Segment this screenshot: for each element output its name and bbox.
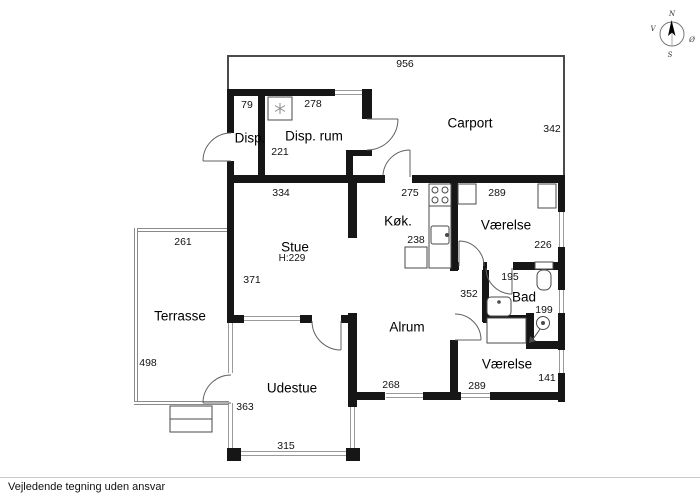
dimension-label: 352 [460,289,478,300]
dimension-label: 199 [535,305,553,316]
washing-machine-icon [268,97,292,120]
dimension-label: 498 [139,358,157,369]
room-label-kokken: Køk. [384,214,412,228]
dimension-label: 79 [241,100,253,111]
dimension-label: 289 [468,381,486,392]
door-swing [383,150,410,177]
shower-icon [529,317,550,344]
dimension-label: 195 [501,272,519,283]
room-label-bad: Bad [512,290,536,304]
floorplan-canvas: N Ø S V Disp. Disp. rum Carport Køk. Vær… [0,0,700,500]
dimension-label: 278 [304,99,322,110]
dimension-label: 221 [271,147,289,158]
ceiling-height-note: H:229 [279,254,306,264]
dimension-label: 289 [488,188,506,199]
room-label-stue: Stue [281,240,309,254]
compass-east-label: Ø [688,36,695,44]
room-label-vaerelse-se: Værelse [482,357,532,371]
dimension-label: 363 [236,402,254,413]
toilet-icon [535,262,553,290]
dimension-label: 371 [243,275,261,286]
compass-west-label: V [650,25,656,33]
door-swing [203,375,231,403]
disclaimer-text: Vejledende tegning uden ansvar [8,481,165,493]
bathroom-sink-icon [487,297,511,316]
dimension-label: 334 [272,188,290,199]
room-label-terrasse: Terrasse [154,309,206,323]
fixtures-layer [0,0,700,500]
room-label-disp-rum: Disp. rum [285,129,343,143]
room-label-alrum: Alrum [389,320,424,334]
compass-rose: N Ø S V [645,5,700,60]
dimension-label: 956 [396,59,414,70]
door-swing [203,133,231,161]
door-swing [367,119,398,150]
footer-divider [0,477,700,478]
cabinet [405,247,427,268]
door-swing [455,314,481,340]
dimension-label: 315 [277,441,295,452]
room-label-udestue: Udestue [267,381,317,395]
door-swing [312,321,341,350]
dimension-label: 268 [382,380,400,391]
dimension-label: 238 [407,235,425,246]
dimension-label: 261 [174,237,192,248]
compass-north-label: N [668,10,676,18]
wardrobe [458,184,476,204]
dimension-label: 342 [543,124,561,135]
dimension-label: 226 [534,240,552,251]
wardrobe [538,184,556,208]
room-label-carport: Carport [447,116,492,130]
dimension-label: 141 [538,373,556,384]
wardrobe [487,318,526,343]
room-label-vaerelse-ne: Værelse [481,218,531,232]
door-swing [459,241,484,266]
compass-south-label: S [668,51,673,59]
dimension-label: 275 [401,188,419,199]
kitchen-sink-icon [431,226,449,244]
terrace-steps [170,406,212,432]
room-label-disp: Disp. [235,131,266,145]
